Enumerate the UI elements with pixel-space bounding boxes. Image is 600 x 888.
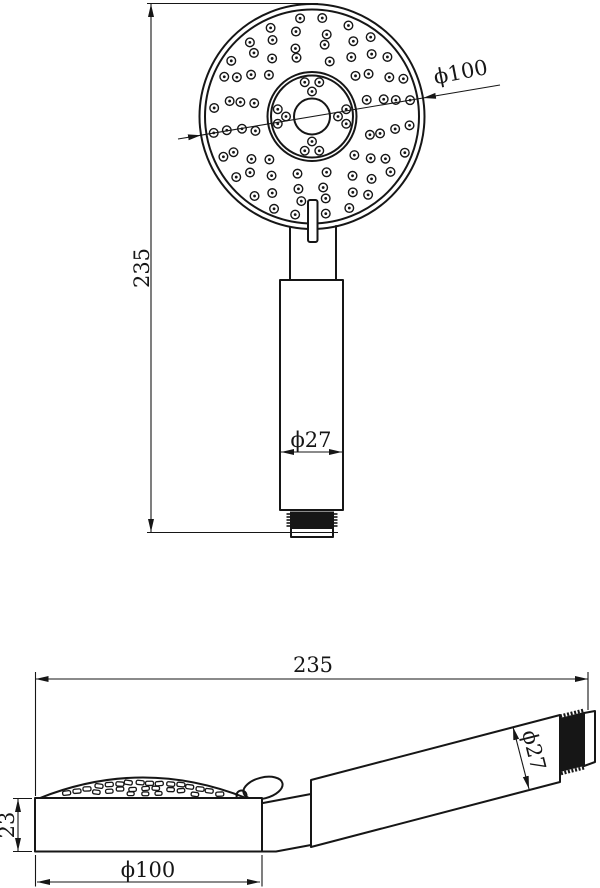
side-head-diameter-label: ϕ100 xyxy=(121,858,175,882)
side-length-label: 235 xyxy=(293,653,333,677)
side-view: 235 ϕ27 23 ϕ100 xyxy=(0,653,595,887)
dimension-front-height: 235 xyxy=(130,4,338,533)
technical-drawing-page: 235 ϕ100 ϕ27 xyxy=(0,0,600,888)
thread-side xyxy=(560,709,584,775)
front-head-diameter-label: ϕ100 xyxy=(432,55,490,89)
front-height-label: 235 xyxy=(130,248,154,288)
handle-front xyxy=(280,280,343,510)
dimension-side-length: 235 xyxy=(36,653,589,796)
dimension-side-thickness: 23 xyxy=(0,799,32,852)
dimension-front-handle-diameter: ϕ27 xyxy=(281,428,342,452)
front-view: 235 ϕ100 ϕ27 xyxy=(130,4,500,538)
spray-nozzles-side xyxy=(62,780,223,797)
dimension-side-handle-diameter: ϕ27 xyxy=(513,727,550,789)
dimension-side-head-diameter: ϕ100 xyxy=(36,855,263,887)
side-handle-diameter-label: ϕ27 xyxy=(517,727,550,773)
thread-front xyxy=(287,512,338,529)
hose-cap-side xyxy=(584,711,595,766)
shower-head-drawing: 235 ϕ100 ϕ27 xyxy=(0,0,600,888)
mode-slider-tab xyxy=(308,200,318,242)
head-side xyxy=(35,798,262,852)
handle-connector xyxy=(262,794,311,852)
front-handle-diameter-label: ϕ27 xyxy=(290,428,331,452)
side-thickness-label: 23 xyxy=(0,812,19,839)
